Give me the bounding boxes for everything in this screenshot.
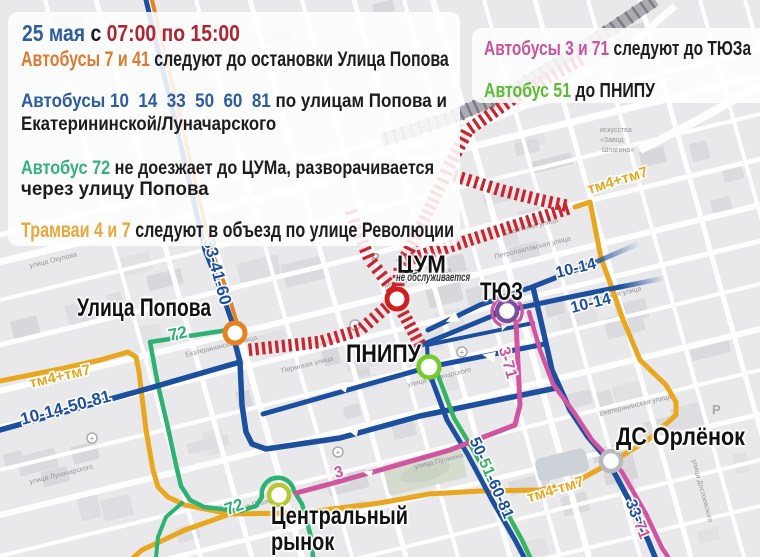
svg-text:Шпагина»: Шпагина» bbox=[602, 147, 634, 154]
svg-text:Р: Р bbox=[712, 402, 721, 417]
svg-text:+: + bbox=[90, 434, 95, 443]
svg-text:+: + bbox=[460, 348, 465, 357]
svg-text:72: 72 bbox=[167, 322, 189, 345]
svg-text:+: + bbox=[336, 448, 341, 457]
svg-text:искусства: искусства bbox=[600, 127, 632, 134]
svg-text:«Завод: «Завод bbox=[600, 137, 623, 144]
